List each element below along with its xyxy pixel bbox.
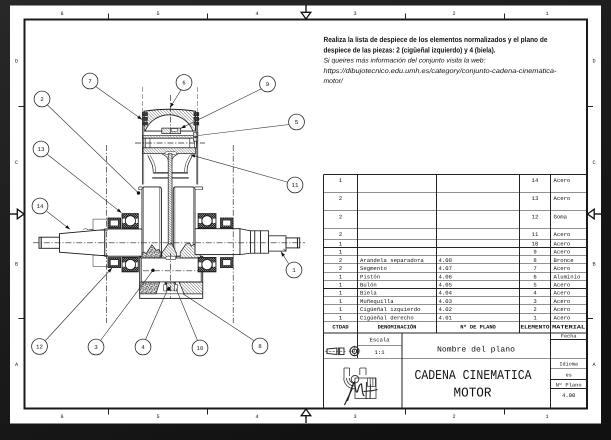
svg-text:ELEMENTO: ELEMENTO bbox=[521, 324, 551, 330]
svg-text:motor/: motor/ bbox=[324, 78, 344, 85]
svg-text:11: 11 bbox=[532, 231, 539, 238]
svg-text:2: 2 bbox=[339, 257, 342, 264]
svg-text:4: 4 bbox=[255, 414, 258, 420]
svg-text:Acero: Acero bbox=[554, 306, 571, 313]
svg-text:3: 3 bbox=[353, 11, 356, 17]
svg-text:Acero: Acero bbox=[554, 282, 571, 289]
svg-text:6: 6 bbox=[60, 414, 63, 420]
svg-text:4.02: 4.02 bbox=[439, 306, 452, 313]
svg-text:11: 11 bbox=[292, 182, 299, 189]
svg-text:Acero: Acero bbox=[554, 241, 571, 248]
svg-text:10: 10 bbox=[532, 241, 539, 248]
svg-text:1: 1 bbox=[545, 414, 548, 420]
svg-text:B: B bbox=[592, 262, 595, 268]
svg-text:https://dibujotecnico.edu.umh.: https://dibujotecnico.edu.umh.es/categor… bbox=[324, 68, 558, 75]
svg-text:4.03: 4.03 bbox=[439, 298, 452, 305]
svg-text:C: C bbox=[15, 160, 18, 166]
svg-text:Bulón: Bulón bbox=[360, 282, 377, 289]
svg-text:1: 1 bbox=[545, 11, 548, 17]
svg-text:7: 7 bbox=[533, 265, 536, 272]
svg-text:Acero: Acero bbox=[554, 298, 571, 305]
svg-text:2: 2 bbox=[339, 265, 342, 272]
svg-text:13: 13 bbox=[532, 195, 539, 202]
svg-text:Acero: Acero bbox=[554, 314, 571, 321]
svg-text:5: 5 bbox=[156, 11, 159, 17]
svg-text:Idioma: Idioma bbox=[559, 362, 578, 368]
svg-text:6: 6 bbox=[60, 11, 63, 17]
svg-text:Acero: Acero bbox=[554, 231, 571, 238]
svg-text:9: 9 bbox=[533, 249, 536, 256]
svg-text:Arandela separadora: Arandela separadora bbox=[360, 257, 424, 264]
svg-text:Realiza la lista de despiece d: Realiza la lista de despiece de los elem… bbox=[324, 35, 548, 44]
svg-text:Pistón: Pistón bbox=[360, 273, 380, 280]
svg-text:C: C bbox=[592, 160, 595, 166]
svg-text:4.07: 4.07 bbox=[439, 265, 452, 272]
svg-text:Acero: Acero bbox=[554, 249, 571, 256]
svg-text:CTDAD: CTDAD bbox=[332, 324, 349, 330]
svg-text:12: 12 bbox=[36, 344, 43, 351]
svg-text:Muñequilla: Muñequilla bbox=[360, 298, 394, 305]
svg-text:2: 2 bbox=[339, 195, 342, 202]
svg-text:Goma: Goma bbox=[554, 213, 568, 220]
svg-text:Nº DE PLANO: Nº DE PLANO bbox=[460, 324, 496, 330]
svg-text:2: 2 bbox=[339, 213, 342, 220]
svg-text:5: 5 bbox=[295, 119, 299, 126]
svg-text:6: 6 bbox=[182, 80, 186, 87]
svg-text:MOTOR: MOTOR bbox=[454, 387, 492, 402]
svg-text:4: 4 bbox=[141, 344, 145, 351]
svg-text:Segmento: Segmento bbox=[360, 265, 387, 272]
svg-text:2: 2 bbox=[452, 11, 455, 17]
svg-text:3: 3 bbox=[353, 414, 356, 420]
svg-text:MATERIAL: MATERIAL bbox=[552, 324, 585, 330]
svg-text:7: 7 bbox=[88, 78, 92, 85]
svg-text:3: 3 bbox=[94, 344, 98, 351]
svg-text:Nº Plano: Nº Plano bbox=[556, 382, 582, 388]
svg-text:CADENA CINEMATICA: CADENA CINEMATICA bbox=[415, 369, 533, 384]
svg-text:Acero: Acero bbox=[554, 290, 571, 297]
svg-text:5: 5 bbox=[533, 282, 536, 289]
svg-text:4.04: 4.04 bbox=[439, 290, 453, 297]
svg-text:Aluminio: Aluminio bbox=[554, 273, 581, 280]
svg-text:4.06: 4.06 bbox=[439, 273, 452, 280]
svg-text:Si queires más información del: Si queires más información del conjunto … bbox=[324, 58, 486, 65]
svg-text:14: 14 bbox=[532, 177, 539, 184]
svg-text:2: 2 bbox=[339, 231, 342, 238]
svg-text:Cigüeñal derecho: Cigüeñal derecho bbox=[360, 314, 414, 321]
svg-text:14: 14 bbox=[37, 203, 44, 210]
svg-text:13: 13 bbox=[38, 146, 45, 153]
svg-text:4.00: 4.00 bbox=[562, 392, 576, 399]
svg-text:10: 10 bbox=[197, 345, 204, 352]
svg-text:Escala: Escala bbox=[370, 337, 391, 344]
svg-text:Biela: Biela bbox=[360, 290, 377, 297]
svg-text:D: D bbox=[592, 59, 595, 65]
svg-text:4.05: 4.05 bbox=[439, 282, 452, 289]
svg-text:2: 2 bbox=[40, 96, 44, 103]
svg-text:Acero: Acero bbox=[554, 195, 571, 202]
svg-text:Cigüeñal izquierdo: Cigüeñal izquierdo bbox=[360, 306, 420, 313]
svg-text:2: 2 bbox=[533, 306, 536, 313]
svg-text:9: 9 bbox=[266, 81, 270, 88]
svg-text:B: B bbox=[15, 262, 18, 268]
svg-text:DENOMINACIÓN: DENOMINACIÓN bbox=[378, 323, 417, 330]
svg-text:Fecha: Fecha bbox=[561, 333, 577, 339]
svg-text:es: es bbox=[566, 373, 572, 379]
svg-text:despiece de las piezas: 2 (cig: despiece de las piezas: 2 (cigüeñal izqu… bbox=[324, 45, 496, 54]
svg-text:Bronce: Bronce bbox=[554, 257, 574, 264]
svg-text:Acero: Acero bbox=[554, 265, 571, 272]
svg-text:Nombre del plano: Nombre del plano bbox=[437, 346, 515, 355]
svg-text:3: 3 bbox=[533, 298, 536, 305]
svg-text:1: 1 bbox=[292, 267, 296, 274]
svg-text:8: 8 bbox=[258, 343, 262, 350]
svg-text:8: 8 bbox=[533, 257, 536, 264]
svg-text:6: 6 bbox=[533, 273, 536, 280]
svg-text:12: 12 bbox=[532, 213, 539, 220]
svg-text:4.08: 4.08 bbox=[439, 257, 452, 264]
svg-text:1:1: 1:1 bbox=[375, 349, 386, 356]
svg-text:4.01: 4.01 bbox=[439, 314, 453, 321]
svg-text:Acero: Acero bbox=[554, 177, 571, 184]
svg-text:5: 5 bbox=[156, 414, 159, 420]
svg-text:2: 2 bbox=[452, 414, 455, 420]
svg-text:4: 4 bbox=[255, 11, 258, 17]
svg-text:D: D bbox=[15, 59, 18, 65]
